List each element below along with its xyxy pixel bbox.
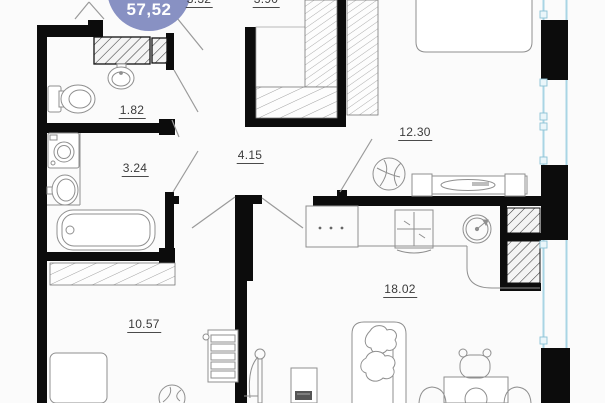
hall-wardrobe-icon: [50, 263, 175, 285]
stove-icon: [395, 210, 433, 253]
wall-pier: [159, 248, 175, 264]
area-label-bedroom-2: 10.57: [127, 317, 161, 333]
wardrobe-tall-icon: [305, 0, 337, 87]
area-label-wardrobe-left: 3.32: [186, 0, 213, 8]
floor-plan-drawing: [0, 0, 605, 403]
bedroom-wardrobe-icon: [347, 0, 378, 115]
window-bedroom: [544, 80, 567, 165]
bedroom-door-leaf: [340, 139, 372, 192]
wall-shaft-mid: [500, 233, 541, 241]
wardrobe-low-icon: [256, 87, 337, 118]
wall-left-outer: [37, 25, 47, 403]
area-label-wardrobe-right: 3.90: [253, 0, 280, 8]
bathtub-icon: [57, 210, 155, 250]
wall-bedroom-kitchen: [313, 196, 545, 206]
area-label-kitchen: 18.02: [383, 282, 417, 298]
kitchen-sink-icon: [463, 215, 491, 243]
plant-icon: [373, 158, 405, 190]
wall-pier-entry: [88, 20, 103, 37]
wall-door-hinge-nub: [337, 190, 347, 197]
wall-closet-left: [245, 27, 256, 122]
bathroom-sink-icon: [47, 175, 78, 205]
washing-machine-icon: [48, 133, 79, 168]
desk-icon: [50, 353, 107, 403]
wall-closet-right: [337, 0, 346, 127]
chair-icon: [419, 387, 446, 403]
wall-bathroom-bottom: [37, 252, 175, 261]
wall-right-pier-3: [541, 348, 570, 403]
entry-door-leaf: [75, 2, 89, 19]
vent-shaft-hatch-2: [507, 241, 540, 283]
floor-lamp-icon: [244, 349, 265, 403]
shelf-icon: [203, 330, 238, 382]
door-leaf: [177, 18, 203, 50]
vent-shaft-hatch-1: [507, 208, 540, 233]
entry-door-leaf: [89, 2, 104, 19]
partition-hatched-wc: [94, 37, 150, 64]
dining-table-icon: [419, 349, 531, 403]
wall-center-upper: [235, 203, 253, 281]
area-label-bathroom: 3.24: [122, 161, 149, 177]
washbasin-icon: [108, 64, 134, 89]
area-label-wc: 1.82: [119, 103, 146, 119]
kitchen-door-leaf: [262, 198, 303, 228]
wall-wc-bathroom-divider: [37, 123, 174, 133]
bed-icon: [416, 0, 532, 52]
sofa-icon: [352, 322, 406, 403]
partition-hatched-wc-2: [152, 38, 167, 63]
wall-shaft-left: [500, 206, 507, 291]
wall-right-pier-1: [541, 20, 568, 80]
total-area-value: 57,52: [126, 0, 171, 31]
area-label-hallway: 4.15: [237, 148, 264, 164]
toilet-icon: [48, 85, 95, 113]
room-door-leaf: [192, 197, 235, 228]
wall-shaft-bottom: [500, 283, 541, 291]
console-table-icon: [412, 174, 527, 196]
window-kitchen: [544, 240, 567, 348]
tv-stand-icon: [291, 368, 317, 403]
wall-right-pier-2: [541, 165, 568, 240]
wall-nub: [174, 196, 179, 204]
wc-door-leaf: [174, 70, 198, 112]
plant-small-icon: [159, 385, 185, 403]
wall-hallway-pier-cap: [235, 195, 262, 204]
area-label-bedroom: 12.30: [398, 125, 432, 141]
bathroom-door-leaf: [173, 151, 198, 192]
floor-plan: 57,52 1.82 3.24 4.15 3.32 3.90 12.30 18.…: [0, 0, 605, 403]
